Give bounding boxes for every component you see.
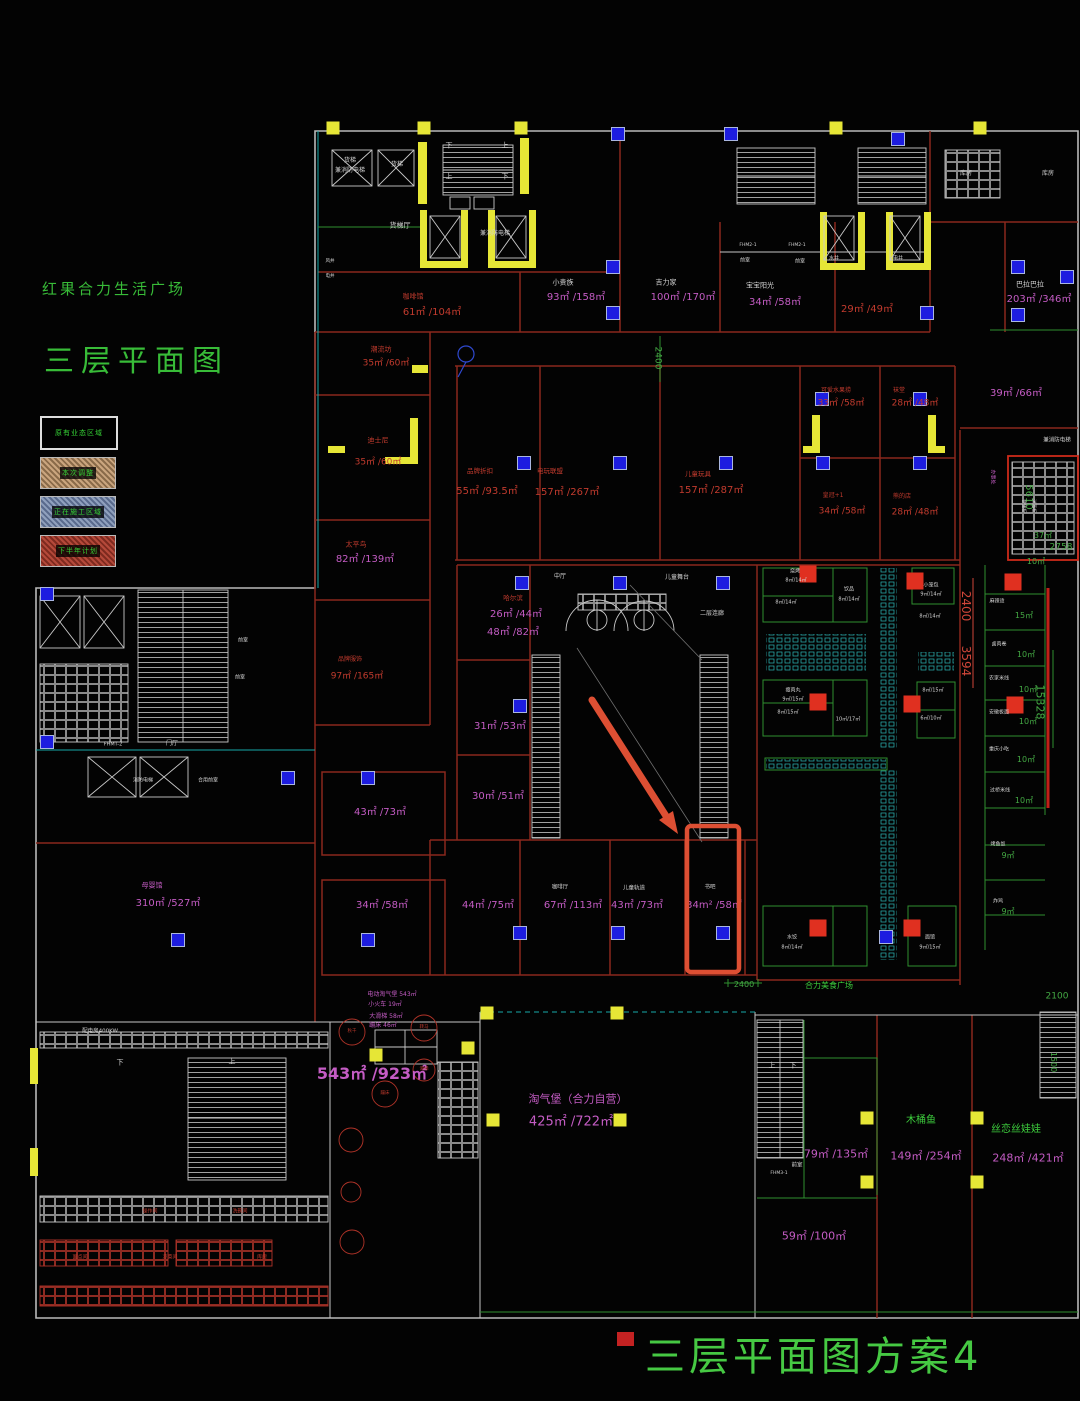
highlighted-room-box[interactable] [687, 826, 739, 972]
floorplan-canvas: 货梯兼消防电梯货梯货梯厅兼消防电梯下上上下咖啡馆61㎡ /104㎡小贵族93㎡ … [0, 0, 1080, 1401]
annotation-overlay [0, 0, 1080, 1401]
annotation-arrow[interactable] [592, 700, 666, 816]
